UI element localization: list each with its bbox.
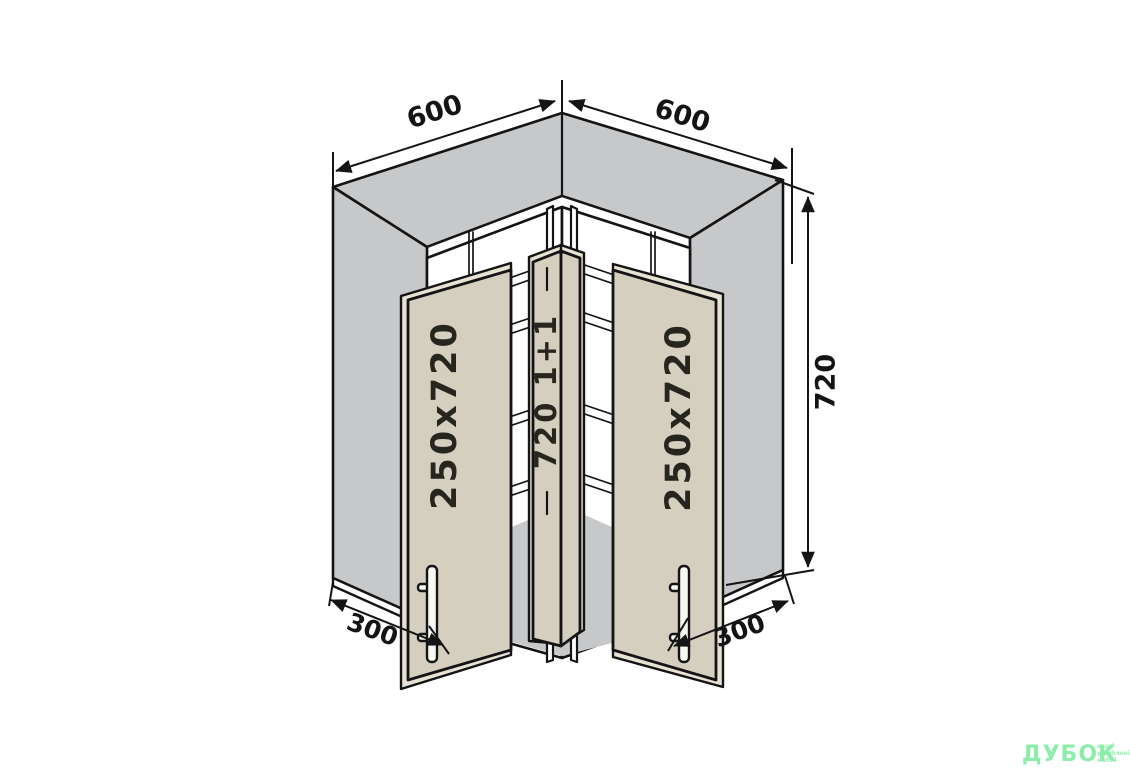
watermark-tagline-3: меблі — [1097, 757, 1117, 764]
dim-label-width-right: 600 — [651, 93, 714, 139]
watermark-tagline-2: улюблені — [1097, 750, 1130, 757]
left-door-label: 250x720 — [425, 320, 465, 510]
cabinet-drawing-canvas: 720 1+1 250x720 250x720 600 600 720 300 … — [0, 0, 1130, 773]
right-door-label: 250x720 — [659, 322, 699, 512]
watermark: ДУБОК ваші улюблені меблі — [1022, 742, 1130, 767]
corner-strip-label: 720 1+1 — [529, 313, 563, 469]
corner-strip-right-face — [561, 251, 580, 646]
dim-label-width-left: 600 — [403, 89, 466, 136]
watermark-tagline-1: ваші — [1097, 743, 1113, 750]
dim-label-height: 720 — [811, 354, 842, 410]
corner-cabinet-technical-drawing: 720 1+1 250x720 250x720 600 600 720 300 … — [0, 0, 1130, 773]
